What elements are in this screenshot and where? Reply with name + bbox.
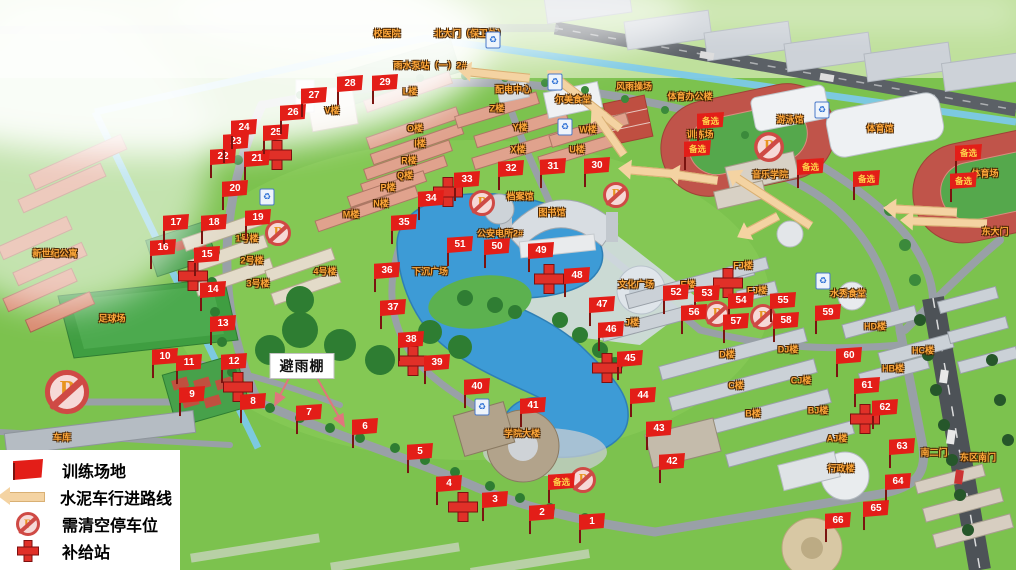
flag-label: 65 (863, 500, 889, 517)
route-arrow-icon (8, 485, 46, 509)
flag-label: 备选 (853, 170, 880, 187)
no-parking-icon: P (8, 512, 48, 536)
training-flag: 34 (418, 190, 444, 222)
flag-label: 59 (815, 304, 841, 321)
route-arrow (470, 68, 531, 83)
supply-cross-icon (8, 539, 48, 563)
training-flag: 33 (454, 171, 480, 203)
no-parking-icon: P (45, 370, 89, 414)
training-flag: 32 (498, 160, 524, 192)
building-label: R楼 (401, 154, 417, 167)
flag-label: 54 (728, 292, 754, 309)
training-flag: 29 (372, 74, 398, 106)
building-label: 体育馆 (866, 122, 893, 135)
route-arrow (912, 217, 987, 229)
training-flag: 39 (424, 354, 450, 386)
flag-label: 41 (520, 397, 546, 414)
building-label: O楼 (407, 122, 423, 135)
training-flag: 57 (723, 313, 749, 345)
flag-label: 6 (352, 418, 378, 435)
flag-label: 28 (337, 75, 363, 92)
building-label: HD楼 (864, 320, 886, 333)
alternate-flag: 备选 (797, 158, 823, 190)
flag-label: 33 (454, 171, 480, 188)
training-flag: 10 (152, 348, 178, 380)
training-flag: 66 (825, 512, 851, 544)
flag-label: 7 (296, 404, 322, 421)
building-label: 车库 (53, 431, 71, 444)
flag-label: 32 (498, 160, 524, 177)
training-flag: 28 (337, 75, 363, 107)
building-label: 4号楼 (313, 265, 336, 278)
training-flag: 36 (374, 262, 400, 294)
flag-label: 2 (529, 504, 555, 521)
flag-label: 备选 (697, 112, 724, 129)
training-flag: 35 (391, 214, 417, 246)
route-arrow (677, 171, 718, 185)
training-flag: 14 (200, 281, 226, 313)
flag-label: 35 (391, 214, 417, 231)
training-flag: 48 (564, 267, 590, 299)
building-label: HB楼 (882, 362, 904, 375)
training-flag: 44 (630, 387, 656, 419)
training-flag: 9 (179, 386, 205, 418)
training-flag: 43 (646, 420, 672, 452)
training-flag: 60 (836, 347, 862, 379)
building-label: W楼 (579, 123, 597, 136)
flag-label: 13 (210, 315, 236, 332)
training-flag: 38 (398, 331, 424, 363)
legend-label: 训练场地 (62, 458, 126, 482)
training-flag: 3 (482, 491, 508, 523)
training-flag: 18 (201, 214, 227, 246)
legend-label: 补给站 (62, 539, 110, 563)
legend-row-route: 水泥车行进路线 (8, 485, 172, 509)
building-label: 体育办公楼 (667, 90, 712, 103)
flag-label: 38 (398, 331, 424, 348)
no-parking-letter: P (268, 223, 288, 243)
training-flag: 49 (528, 242, 554, 274)
training-flag: 51 (447, 236, 473, 268)
flag-label: 15 (194, 246, 220, 263)
campus-map: 足球场训练场体育场体育馆游泳馆音乐学院图书馆档案馆文化广场下沉广场学院大楼行政楼… (0, 0, 1016, 570)
flag-label: 备选 (955, 144, 982, 161)
legend-row-supply: 补给站 (8, 539, 172, 563)
building-label: HC楼 (912, 344, 934, 357)
recycle-icon: ♻ (548, 74, 563, 91)
recycle-icon: ♻ (815, 102, 830, 119)
recycle-icon: ♻ (816, 273, 831, 290)
building-label: 雨水泵站（一）2# (393, 59, 466, 72)
building-label: 行政楼 (827, 462, 854, 475)
route-arrow (746, 212, 780, 236)
recycle-icon: ♻ (486, 32, 501, 49)
no-parking-letter: P (573, 470, 593, 490)
building-label: Y楼 (512, 121, 527, 134)
building-label: 音乐学院 (752, 168, 788, 181)
building-label: L楼 (403, 85, 418, 98)
building-label: 3号楼 (246, 277, 269, 290)
flag-label: 37 (380, 299, 406, 316)
training-flag: 24 (231, 119, 257, 151)
flag-label: 20 (222, 180, 248, 197)
flag-label: 14 (200, 281, 226, 298)
training-flag: 62 (872, 399, 898, 431)
flag-label: 61 (854, 377, 880, 394)
flag-label: 60 (836, 347, 862, 364)
training-flag: 42 (659, 453, 685, 485)
training-flag: 31 (540, 158, 566, 190)
building-label: 尔美食堂 (555, 93, 591, 106)
no-parking-letter: P (758, 136, 781, 159)
legend-row-noparking: P 需清空停车位 (8, 512, 172, 536)
building-label: 东大门 (981, 225, 1008, 238)
recycle-icon: ♻ (558, 119, 573, 136)
building-label: X楼 (510, 143, 525, 156)
flag-label: 18 (201, 214, 227, 231)
training-flag: 1 (579, 513, 605, 545)
training-flag: 37 (380, 299, 406, 331)
flag-label: 备选 (950, 172, 977, 189)
flag-label: 备选 (797, 158, 824, 175)
flag-label: 5 (407, 443, 433, 460)
flag-label: 49 (528, 242, 554, 259)
recycle-icon: ♻ (260, 189, 275, 206)
building-label: 新世纪公寓 (32, 247, 77, 260)
flag-label: 30 (584, 157, 610, 174)
training-flag: 45 (617, 350, 643, 382)
flag-label: 43 (646, 420, 672, 437)
flag-label: 27 (301, 87, 327, 104)
training-flag: 19 (245, 209, 271, 241)
training-flag: 5 (407, 443, 433, 475)
flag-label: 66 (825, 512, 851, 529)
training-flag: 4 (436, 475, 462, 507)
legend-label: 水泥车行进路线 (60, 485, 172, 509)
building-label: 文化广场 (618, 278, 654, 291)
training-flag: 65 (863, 500, 889, 532)
flag-label: 11 (176, 354, 202, 371)
training-flag: 11 (176, 354, 202, 386)
training-flag: 41 (520, 397, 546, 429)
training-flag: 56 (681, 304, 707, 336)
building-label: CJ楼 (791, 374, 812, 387)
flag-label: 47 (589, 296, 615, 313)
flag-label: 57 (723, 313, 749, 330)
building-label: B楼 (745, 407, 761, 420)
flag-label: 40 (464, 378, 490, 395)
flag-label: 19 (245, 209, 271, 226)
legend-label: 需清空停车位 (62, 512, 158, 536)
training-flag: 27 (301, 87, 327, 119)
building-label: AJ楼 (827, 432, 848, 445)
flag-label: 44 (630, 387, 656, 404)
flag-label: 55 (770, 292, 796, 309)
building-label: Q楼 (397, 169, 413, 182)
flag-label: 8 (240, 393, 266, 410)
flag-label: 39 (424, 354, 450, 371)
alternate-flag: 备选 (684, 140, 710, 172)
flag-label: 24 (231, 119, 257, 136)
building-label: 水秀食堂 (830, 287, 866, 300)
flag-label: 63 (889, 438, 915, 455)
training-flag: 15 (194, 246, 220, 278)
building-label: 校医院 (373, 27, 400, 40)
building-label: N楼 (373, 197, 389, 210)
no-parking-letter: P (50, 375, 84, 409)
training-flag: 20 (222, 180, 248, 212)
flag-label: 48 (564, 267, 590, 284)
building-label: 下沉广场 (412, 265, 448, 278)
training-flag: 8 (240, 393, 266, 425)
flag-label: 12 (221, 353, 247, 370)
training-flag: 13 (210, 315, 236, 347)
flag-label: 53 (694, 285, 720, 302)
training-flag: 30 (584, 157, 610, 189)
flag-label: 52 (663, 284, 689, 301)
building-label: 配电中心 (495, 83, 531, 96)
building-label: C楼 (728, 379, 744, 392)
training-flag: 63 (889, 438, 915, 470)
building-label: J楼 (625, 316, 639, 329)
building-label: D楼 (719, 348, 735, 361)
training-flag-icon (8, 458, 48, 482)
building-label: DJ楼 (778, 343, 799, 356)
training-flag: 12 (221, 353, 247, 385)
building-label: 风雨操场 (616, 80, 652, 93)
flag-label: 58 (773, 312, 799, 329)
flag-label: 62 (872, 399, 898, 416)
training-flag: 17 (163, 214, 189, 246)
flag-label: 51 (447, 236, 473, 253)
flag-label: 17 (163, 214, 189, 231)
flag-label: 备选 (548, 473, 575, 490)
training-flag: 6 (352, 418, 378, 450)
flag-label: 36 (374, 262, 400, 279)
flag-label: 31 (540, 158, 566, 175)
flag-label: 3 (482, 491, 508, 508)
flag-label: 9 (179, 386, 205, 403)
flag-label: 50 (484, 238, 510, 255)
building-label: P楼 (380, 181, 395, 194)
flag-label: 29 (372, 74, 398, 91)
flag-label: 42 (659, 453, 685, 470)
building-label: 游泳馆 (776, 113, 803, 126)
flag-label: 64 (885, 473, 911, 490)
building-label: Z楼 (490, 102, 505, 115)
building-label: U楼 (569, 143, 585, 156)
training-flag: 2 (529, 504, 555, 536)
training-flag: 59 (815, 304, 841, 336)
training-flag: 7 (296, 404, 322, 436)
flag-label: 10 (152, 348, 178, 365)
legend-row-training: 训练场地 (8, 458, 172, 482)
training-flag: 50 (484, 238, 510, 270)
flag-label: 56 (681, 304, 707, 321)
building-label: I楼 (414, 137, 426, 150)
alternate-flag: 备选 (950, 172, 976, 204)
flag-label: 34 (418, 190, 444, 207)
no-parking-icon: P (754, 132, 784, 162)
building-label: M楼 (343, 208, 360, 221)
flag-label: 1 (579, 513, 605, 530)
flag-label: 备选 (684, 140, 711, 157)
legend-panel: 训练场地 水泥车行进路线 P 需清空停车位 补给站 (0, 450, 180, 570)
flag-label: 4 (436, 475, 462, 492)
alternate-flag: 备选 (548, 473, 574, 505)
building-label: 图书馆 (538, 206, 565, 219)
building-label: 南二门 (920, 446, 947, 459)
training-flag: 47 (589, 296, 615, 328)
building-label: 东区南门 (960, 451, 996, 464)
training-flag: 58 (773, 312, 799, 344)
rain-shelter-callout: 避雨棚 (270, 353, 335, 379)
training-flag: 40 (464, 378, 490, 410)
building-label: BJ楼 (808, 404, 829, 417)
building-label: 足球场 (98, 312, 125, 325)
building-label: 2号楼 (240, 254, 263, 267)
alternate-flag: 备选 (853, 170, 879, 202)
